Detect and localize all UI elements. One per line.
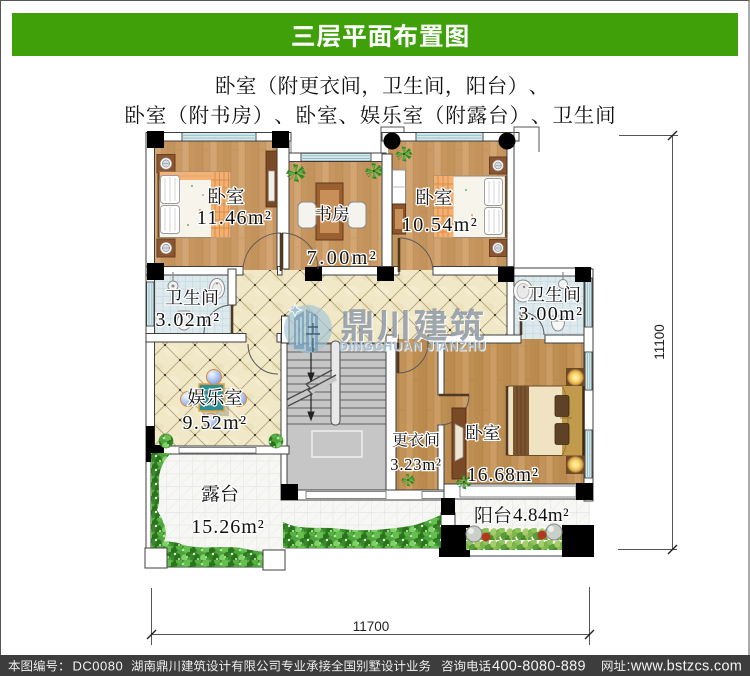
svg-text:DC0080: DC0080 <box>73 659 124 674</box>
svg-text:16.68m²: 16.68m² <box>467 465 539 486</box>
svg-text:7.00m²: 7.00m² <box>307 247 379 269</box>
svg-text:10.54m²: 10.54m² <box>402 214 478 236</box>
svg-text:11700: 11700 <box>353 619 390 634</box>
svg-text:4.84m²: 4.84m² <box>513 505 569 526</box>
svg-text:11.46m²: 11.46m² <box>197 207 273 229</box>
svg-text:9.52m²: 9.52m² <box>183 412 248 434</box>
svg-text:3.00m²: 3.00m² <box>519 303 584 325</box>
svg-text::www.bstzcs.com: :www.bstzcs.com <box>627 659 743 675</box>
svg-text:15.26m²: 15.26m² <box>191 516 265 538</box>
svg-text:3.02m²: 3.02m² <box>156 309 221 331</box>
svg-text:11100: 11100 <box>652 324 667 360</box>
svg-text:DINGCHUAN JIANZHU: DINGCHUAN JIANZHU <box>339 340 487 354</box>
svg-text:400-8080-889: 400-8080-889 <box>492 659 586 675</box>
svg-text:3.23m²: 3.23m² <box>390 455 441 474</box>
